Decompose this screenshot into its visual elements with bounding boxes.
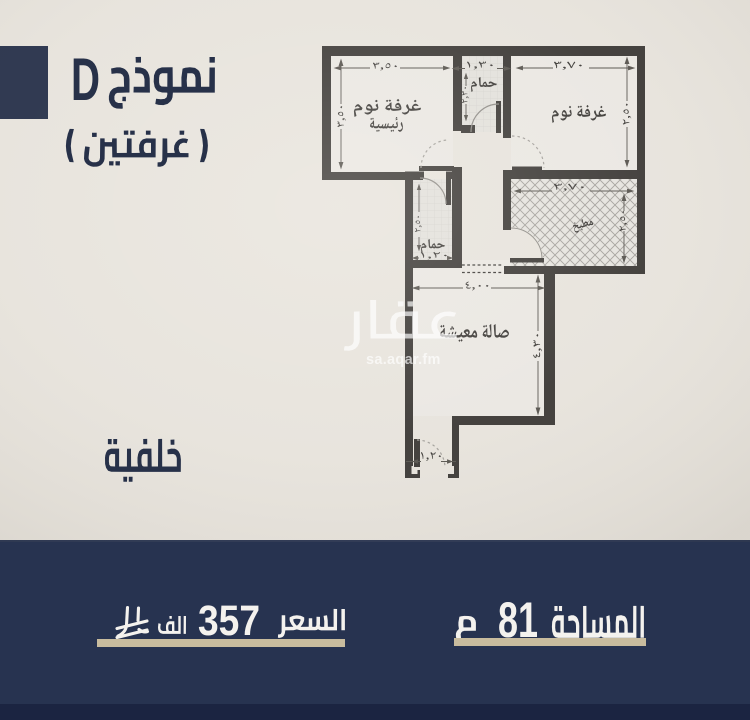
svg-text:D: D [71, 46, 100, 113]
svg-text:81: 81 [498, 592, 538, 648]
svg-text:357: 357 [198, 597, 260, 645]
svg-text:sa.aqar.fm: sa.aqar.fm [366, 352, 441, 368]
